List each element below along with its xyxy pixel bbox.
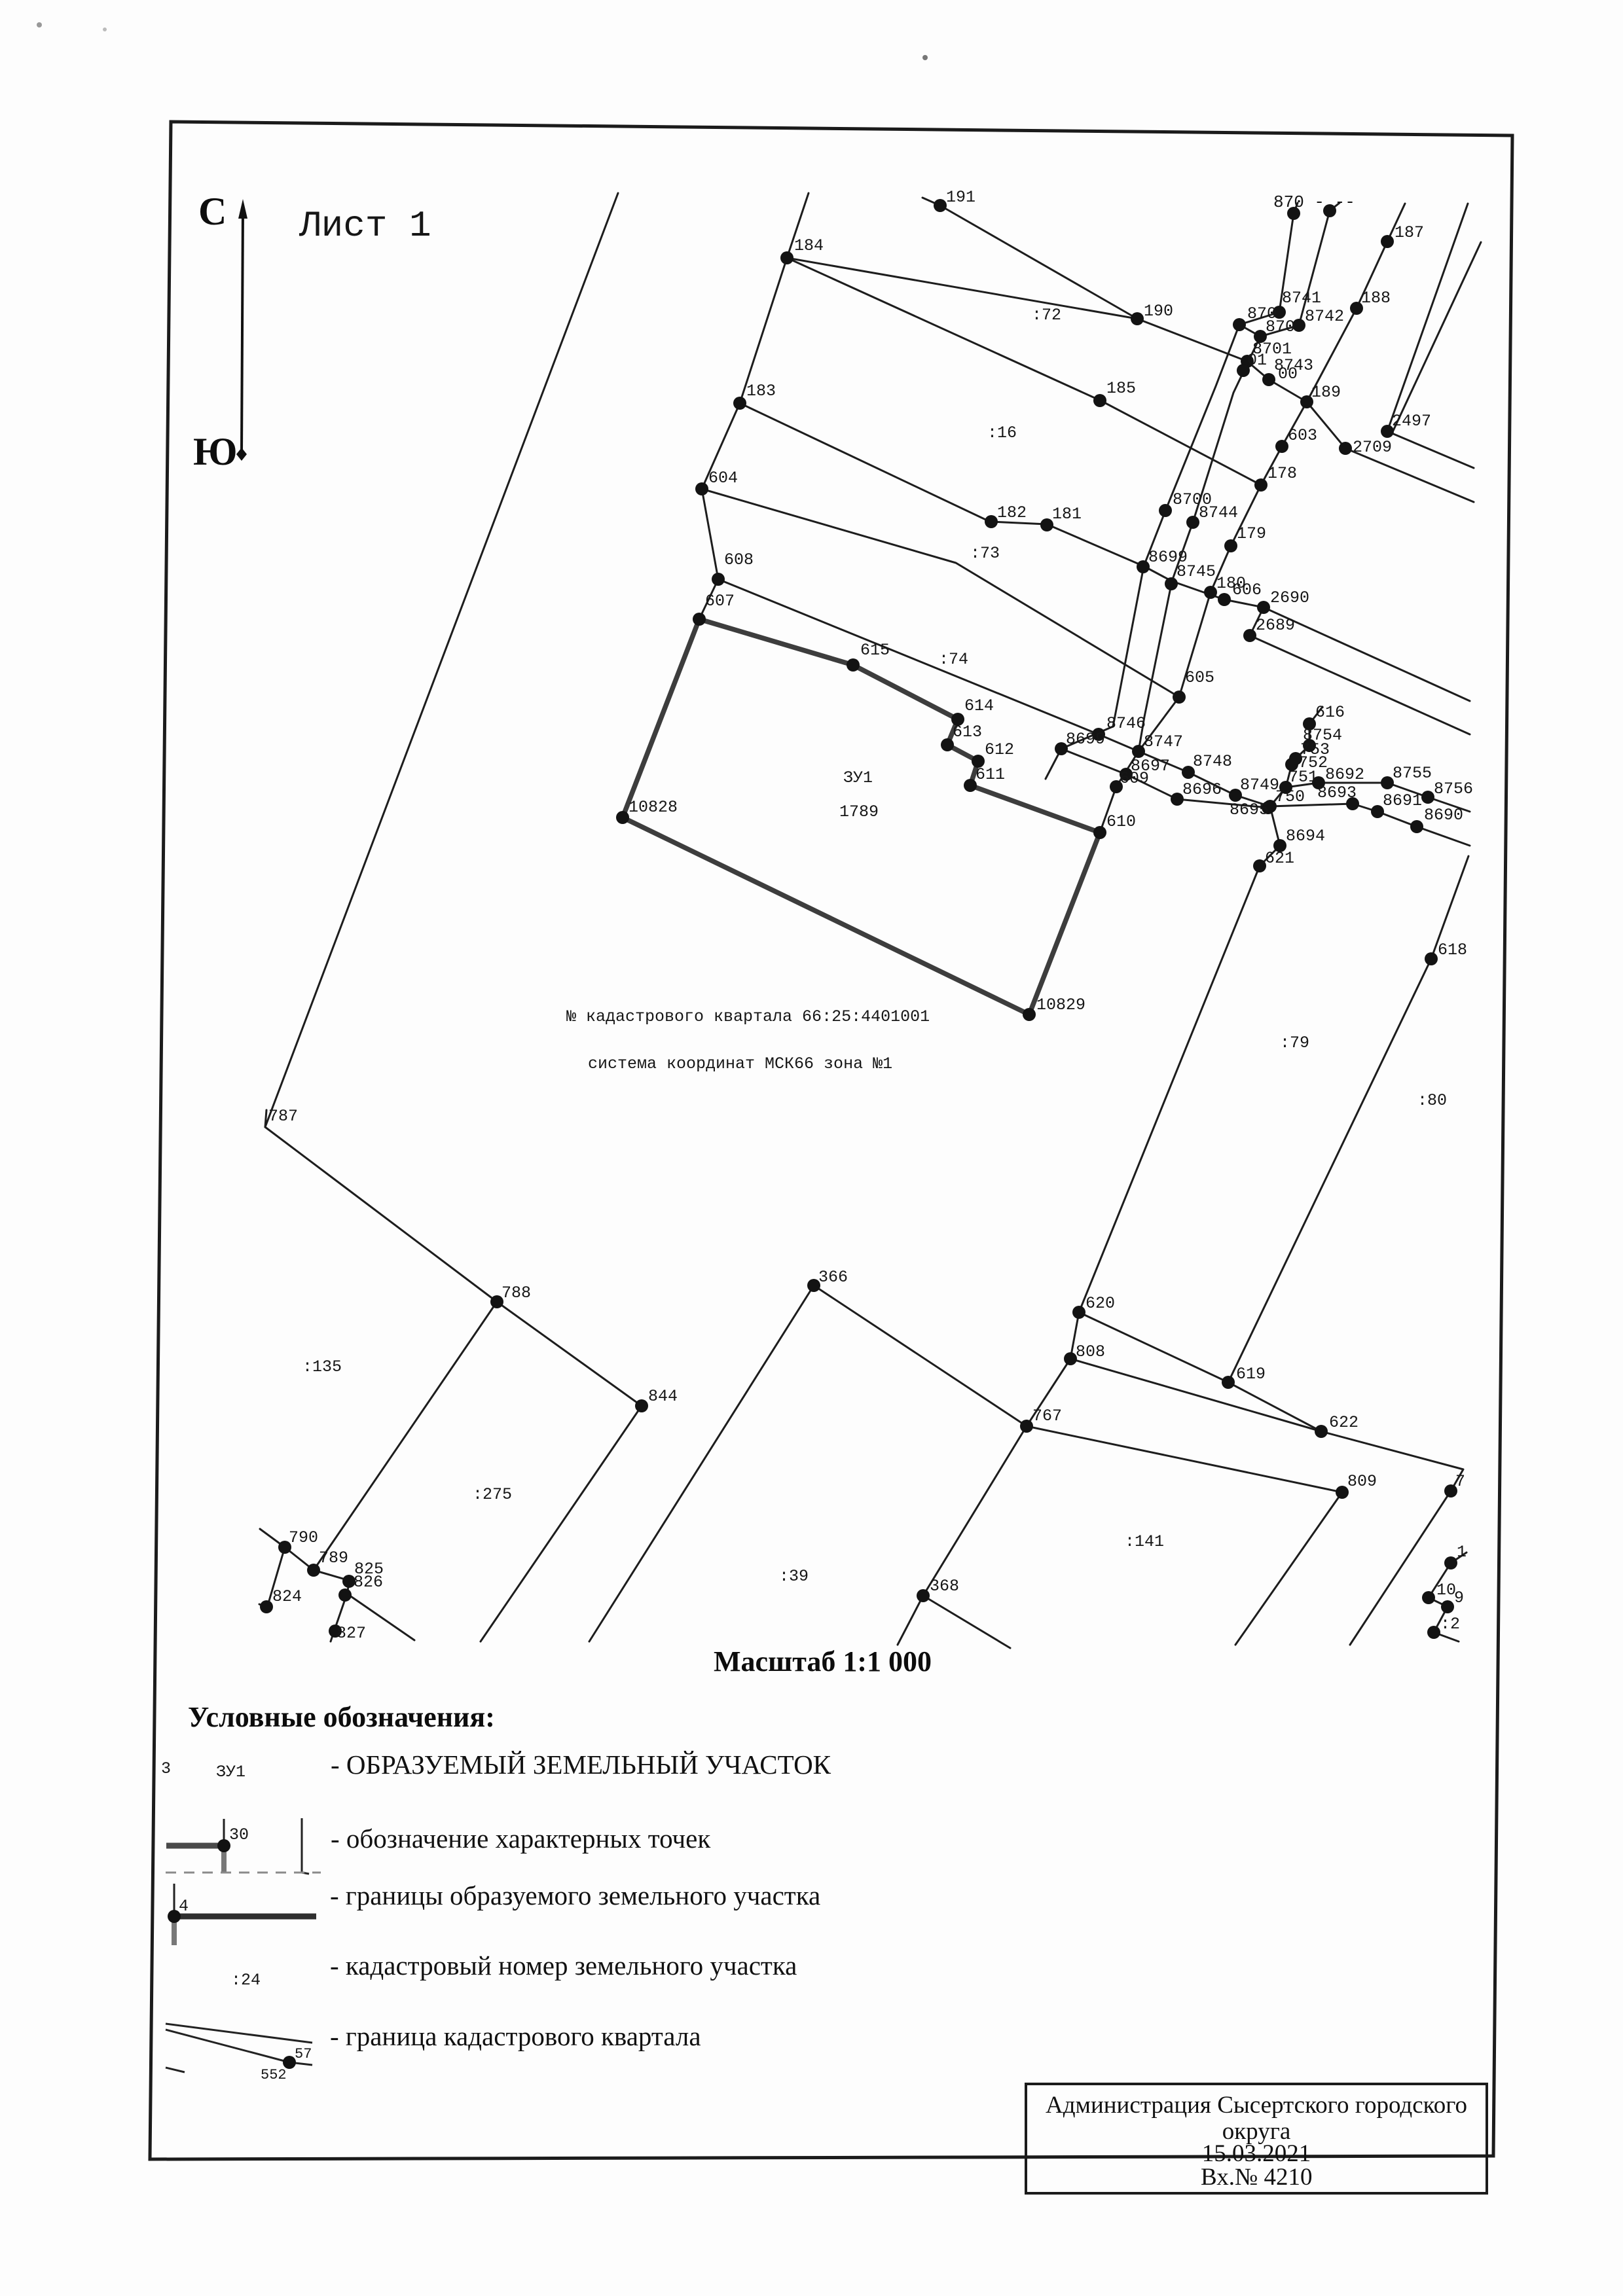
svg-text:С: С	[198, 190, 227, 233]
svg-text:8699: 8699	[1066, 730, 1105, 749]
svg-text:178: 178	[1267, 464, 1297, 483]
svg-text:8742: 8742	[1305, 307, 1344, 326]
svg-text:611: 611	[976, 765, 1005, 784]
svg-text:182: 182	[997, 503, 1027, 522]
svg-text:621: 621	[1265, 849, 1294, 868]
svg-text:622: 622	[1329, 1413, 1359, 1432]
svg-text:179: 179	[1237, 524, 1266, 543]
svg-text:8692: 8692	[1325, 765, 1364, 784]
svg-text:8744: 8744	[1199, 503, 1238, 522]
svg-text:00: 00	[1278, 365, 1298, 384]
svg-text:614: 614	[964, 696, 994, 715]
svg-text:790: 790	[289, 1528, 318, 1547]
svg-text:4: 4	[179, 1897, 189, 1916]
svg-text::16: :16	[987, 423, 1017, 442]
svg-text:Лист 1: Лист 1	[299, 205, 431, 247]
svg-text::79: :79	[1280, 1033, 1309, 1052]
svg-text:8747: 8747	[1144, 732, 1183, 751]
svg-text:10829: 10829	[1036, 996, 1085, 1014]
svg-text:620: 620	[1085, 1294, 1115, 1313]
svg-text:787: 787	[268, 1107, 298, 1126]
svg-text:8746: 8746	[1106, 714, 1146, 733]
svg-text:185: 185	[1106, 379, 1136, 398]
svg-text::141: :141	[1125, 1532, 1164, 1551]
svg-text:- ОБРАЗУЕМЫЙ ЗЕМЕЛЬНЫЙ УЧАСТОК: - ОБРАЗУЕМЫЙ ЗЕМЕЛЬНЫЙ УЧАСТОК	[331, 1749, 831, 1780]
svg-text:8745: 8745	[1176, 562, 1216, 581]
svg-text:827: 827	[337, 1624, 366, 1643]
svg-text:8749: 8749	[1240, 776, 1279, 795]
svg-text:615: 615	[860, 641, 890, 660]
svg-text:- границы образуемого земельно: - границы образуемого земельного участка	[330, 1880, 820, 1910]
svg-text:Условные обозначения:: Условные обозначения:	[188, 1701, 495, 1733]
svg-text:188: 188	[1361, 289, 1391, 308]
svg-text:Администрация Сысертского горо: Администрация Сысертского городского	[1046, 2092, 1467, 2119]
svg-text:№ кадастрового квартала 66:25:: № кадастрового квартала 66:25:4401001	[566, 1007, 930, 1026]
svg-text:189: 189	[1311, 383, 1341, 402]
svg-text:824: 824	[272, 1587, 302, 1606]
svg-text:- кадастровый номер земельного: - кадастровый номер земельного участка	[330, 1950, 797, 1981]
svg-text:552: 552	[261, 2067, 287, 2083]
svg-text:30: 30	[229, 1825, 249, 1844]
svg-text:826: 826	[354, 1573, 383, 1592]
svg-text::74: :74	[939, 650, 968, 669]
svg-text:8691: 8691	[1383, 791, 1422, 810]
svg-text::72: :72	[1032, 306, 1061, 325]
svg-text::73: :73	[970, 544, 1000, 563]
svg-text:8696: 8696	[1182, 780, 1222, 799]
svg-text:1789: 1789	[839, 802, 879, 821]
svg-text:8755: 8755	[1393, 764, 1432, 783]
svg-text:2690: 2690	[1270, 588, 1309, 607]
svg-text::39: :39	[779, 1567, 809, 1586]
svg-text:ЗУ1: ЗУ1	[216, 1763, 246, 1782]
svg-text:605: 605	[1185, 668, 1214, 687]
svg-text::2: :2	[1440, 1615, 1460, 1634]
svg-text:2689: 2689	[1256, 616, 1295, 635]
svg-text:2497: 2497	[1392, 412, 1431, 431]
svg-text:870: 870	[1266, 317, 1295, 336]
svg-text:10: 10	[1436, 1581, 1456, 1600]
svg-text:368: 368	[930, 1577, 959, 1596]
svg-text:187: 187	[1395, 223, 1424, 242]
svg-text:10828: 10828	[629, 798, 678, 817]
svg-text:9: 9	[1454, 1588, 1464, 1607]
svg-text:870 - --: 870 - --	[1273, 192, 1355, 212]
svg-text:2709: 2709	[1353, 438, 1392, 457]
svg-text:789: 789	[319, 1549, 348, 1568]
svg-text:8754: 8754	[1303, 726, 1342, 745]
svg-text:619: 619	[1236, 1365, 1266, 1384]
svg-text:604: 604	[708, 469, 738, 488]
svg-text:844: 844	[648, 1387, 678, 1406]
svg-text:750: 750	[1275, 787, 1305, 806]
svg-text:8695: 8695	[1230, 800, 1269, 819]
svg-text:190: 190	[1144, 302, 1173, 321]
svg-text:8748: 8748	[1193, 752, 1232, 771]
svg-text:1: 1	[1457, 1543, 1467, 1562]
svg-text:8694: 8694	[1286, 827, 1325, 846]
svg-text:612: 612	[985, 740, 1014, 759]
svg-text:181: 181	[1052, 505, 1082, 524]
svg-text:Ю: Ю	[193, 430, 238, 473]
svg-text:808: 808	[1076, 1342, 1105, 1361]
svg-text::24: :24	[231, 1971, 261, 1990]
svg-text:183: 183	[746, 382, 776, 401]
svg-text:618: 618	[1438, 941, 1467, 960]
svg-text::275: :275	[473, 1485, 512, 1504]
svg-text:191: 191	[946, 188, 976, 207]
svg-text:Масштаб 1:1 000: Масштаб 1:1 000	[714, 1645, 932, 1677]
svg-text:788: 788	[501, 1283, 531, 1302]
svg-text:8693: 8693	[1317, 783, 1357, 802]
svg-text:767: 767	[1032, 1407, 1062, 1426]
svg-text:366: 366	[818, 1268, 848, 1287]
svg-text:616: 616	[1315, 703, 1345, 722]
svg-text:Вх.№ 4210: Вх.№ 4210	[1201, 2164, 1313, 2191]
svg-text:184: 184	[794, 236, 824, 255]
svg-text::80: :80	[1417, 1091, 1447, 1110]
svg-text:01: 01	[1247, 351, 1267, 370]
svg-text:15.03.2021: 15.03.2021	[1202, 2140, 1311, 2167]
svg-text:- граница кадастрового квартал: - граница кадастрового квартала	[330, 2021, 701, 2051]
svg-text:ЗУ1: ЗУ1	[843, 768, 873, 787]
svg-text::135: :135	[302, 1357, 342, 1376]
svg-text:3: 3	[161, 1759, 171, 1778]
svg-text:603: 603	[1288, 426, 1317, 445]
svg-text:613: 613	[953, 723, 982, 742]
svg-text:609: 609	[1120, 769, 1149, 788]
svg-text:8741: 8741	[1282, 289, 1321, 308]
svg-text:607: 607	[705, 592, 735, 611]
svg-text:8756: 8756	[1434, 780, 1473, 798]
svg-text:57: 57	[295, 2046, 312, 2062]
svg-text:608: 608	[724, 550, 754, 569]
svg-text:8690: 8690	[1424, 806, 1463, 825]
svg-text:606: 606	[1232, 581, 1262, 600]
svg-text:610: 610	[1106, 812, 1136, 831]
svg-text:7: 7	[1455, 1472, 1465, 1491]
svg-text:система координат МСК66 зона №: система координат МСК66 зона №1	[588, 1054, 892, 1073]
svg-text:- обозначение характерных точе: - обозначение характерных точек	[331, 1823, 710, 1854]
svg-text:809: 809	[1347, 1472, 1377, 1491]
